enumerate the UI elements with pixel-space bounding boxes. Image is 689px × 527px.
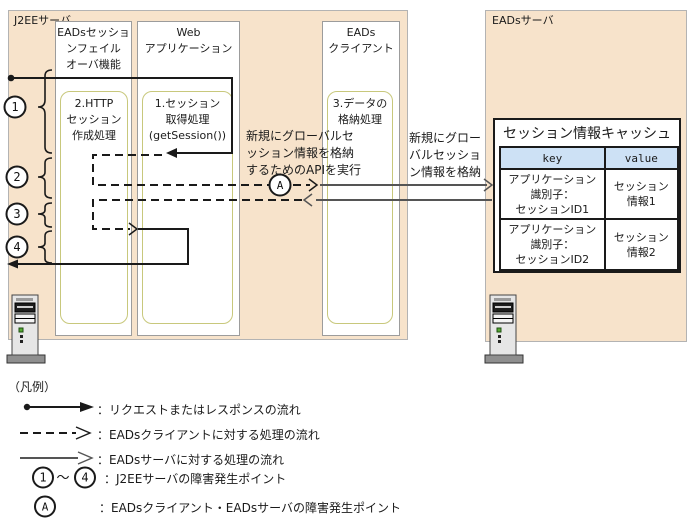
legend-item-eads-failure-point: ：EADsクライアント・EADsサーバの障害発生ポイント [99,499,401,516]
legend-title: （凡例） [8,378,56,395]
eads-server-label: EADsサーバ [492,12,554,28]
legend-failure-points-symbol: 1 ～ 4 [32,466,98,489]
legend-item-j2ee-failure-points: ：J2EEサーバの障害発生ポイント [104,470,286,487]
eads-server-icon [482,292,526,366]
cache-row-2-key: アプリケーション 識別子： セッションID2 [500,219,605,270]
session-get-process-box: 1.セッション 取得処理 (getSession()) [142,91,233,324]
data-store-process-box: 3.データの 格納処理 [327,91,393,324]
diagram-page: J2EEサーバ EADsサーバ EADsセッショ ンフェイル オーバ機能 Web… [0,0,689,527]
cache-row-2: アプリケーション 識別子： セッションID2 セッション 情報2 [500,219,678,270]
http-session-create-process-box: 2.HTTP セッション 作成処理 [60,91,128,324]
cache-header-key: key [500,147,605,169]
svg-text:～: ～ [56,471,69,486]
session-cache-table: key value アプリケーション 識別子： セッションID1 セッション 情… [499,146,679,271]
session-cache-box: セッション情報キャッシュ key value アプリケーション 識別子： セッシ… [493,118,681,273]
cache-row-2-value: セッション 情報2 [605,219,678,270]
store-info-annotation: 新規にグロー バルセッショ ン情報を格納 [409,130,501,181]
legend-item-eads-client-flow: ：EADsクライアントに対する処理の流れ [97,426,320,443]
cache-row-1: アプリケーション 識別子： セッションID1 セッション 情報1 [500,169,678,219]
cache-row-1-value: セッション 情報1 [605,169,678,219]
legend-item-eads-server-flow: ：EADsサーバに対する処理の流れ [97,451,284,468]
j2ee-server-icon [4,292,48,366]
webapp-column-title: Web アプリケーション [138,22,239,57]
session-cache-title: セッション情報キャッシュ [495,123,679,143]
legend-failure-point-a-symbol: A [33,495,57,518]
legend-eads-client-flow-symbol [18,425,98,441]
cache-header-value: value [605,147,678,169]
cache-row-1-key: アプリケーション 識別子： セッションID1 [500,169,605,219]
api-call-annotation: 新規にグローバルセ ッション情報を格納 するためのAPIを実行 [246,128,366,179]
svg-text:A: A [42,501,49,514]
svg-text:4: 4 [81,471,88,485]
legend-item-request: ：リクエストまたはレスポンスの流れ [97,401,301,418]
legend-request-arrow-symbol [20,399,100,415]
failover-column-title: EADsセッショ ンフェイル オーバ機能 [56,22,131,73]
legend-eads-server-flow-symbol [18,450,98,466]
svg-text:1: 1 [39,471,46,485]
cache-header-row: key value [500,147,678,169]
eads-client-column-title: EADs クライアント [323,22,399,57]
